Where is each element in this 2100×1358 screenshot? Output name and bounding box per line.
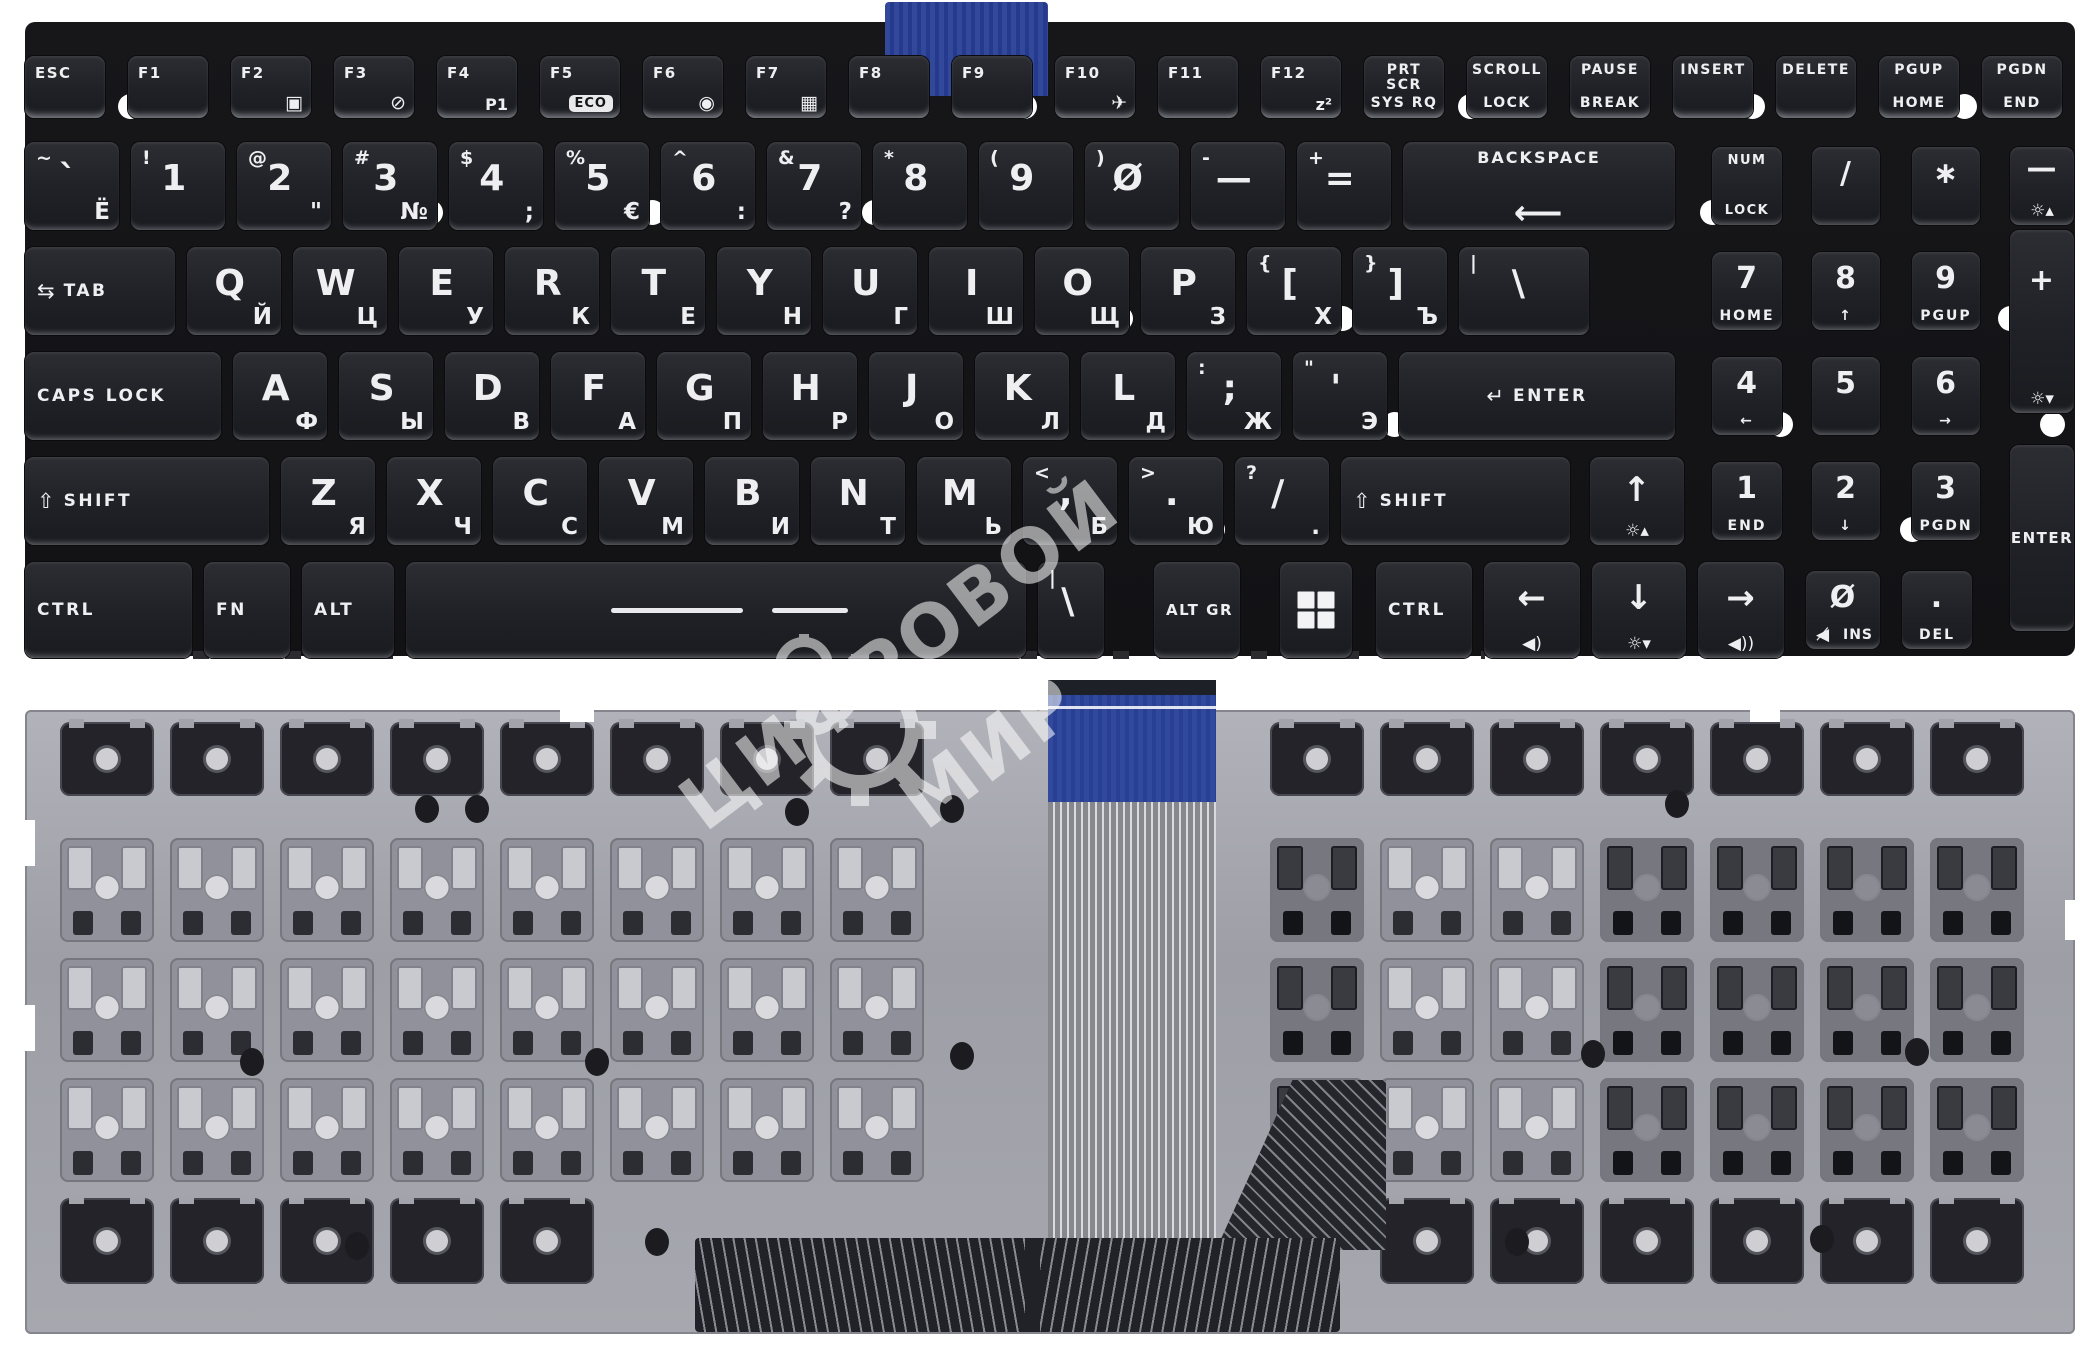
backplate-latch-cell bbox=[1380, 838, 1474, 942]
key-main-legend: ∗ bbox=[1933, 159, 1959, 189]
backplate-latch-cell bbox=[500, 722, 594, 796]
key-label: SHIFT bbox=[64, 491, 133, 511]
key-lines: DELETE bbox=[1779, 63, 1853, 111]
volume-down-icon: ◀) bbox=[1484, 636, 1580, 653]
backplate-latch-cell bbox=[1820, 1198, 1914, 1284]
key-cyrillic-legend: ; bbox=[525, 201, 534, 224]
key-cyrillic-legend: . bbox=[1311, 516, 1320, 539]
backplate-latch-cell bbox=[1710, 722, 1804, 796]
key-cyrillic-legend: И bbox=[771, 516, 790, 539]
key-label: F3 bbox=[344, 64, 368, 82]
key-main-legend: 3 bbox=[1935, 474, 1957, 504]
key-main-legend: Y bbox=[747, 266, 774, 302]
screw-hole bbox=[415, 795, 439, 823]
key-lbracket: {[Х bbox=[1247, 247, 1341, 335]
backplate-latch-cell bbox=[610, 722, 704, 796]
screw-hole bbox=[950, 1042, 974, 1070]
key-label-wrap: F6 bbox=[653, 56, 677, 118]
key-4: $4; bbox=[449, 142, 543, 230]
edge-notch bbox=[560, 708, 594, 722]
key-main-legend: ; bbox=[1223, 371, 1238, 407]
key-t: TЕ bbox=[611, 247, 705, 335]
backplate-latch-cell bbox=[1710, 958, 1804, 1062]
key-shift-legend: } bbox=[1364, 254, 1378, 273]
key-cyrillic-legend: Ч bbox=[453, 516, 472, 539]
key-period: >.Ю bbox=[1129, 457, 1223, 545]
key-lines: INSERT bbox=[1676, 63, 1750, 111]
backplate-latch-cell bbox=[1930, 722, 2024, 796]
key-shift-legend: > bbox=[1140, 464, 1156, 483]
key-arrow-left: ←◀) bbox=[1484, 562, 1580, 658]
key-2: @2" bbox=[237, 142, 331, 230]
backplate-latch-cell bbox=[1820, 1078, 1914, 1182]
key-secondary-legend: DEL bbox=[1902, 627, 1972, 643]
key-main-legend: L bbox=[1112, 371, 1136, 407]
key-label-wrap: ESC bbox=[35, 56, 72, 118]
backplate-latch-cell bbox=[1930, 958, 2024, 1062]
keyboard-front: ESCF1F2▣F3⊘P1F4F5ECOF6◉F7▦F8F9F10✈F11z²F… bbox=[25, 22, 2075, 656]
key-backslash: |\ bbox=[1459, 247, 1589, 335]
key-main-legend: / bbox=[1840, 159, 1852, 189]
key-g: GП bbox=[657, 352, 751, 440]
product-photo: ESCF1F2▣F3⊘P1F4F5ECOF6◉F7▦F8F9F10✈F11z²F… bbox=[0, 0, 2100, 1358]
edge-notch bbox=[23, 820, 35, 866]
key-main-legend: F bbox=[581, 371, 607, 407]
key-cyrillic-legend: Т bbox=[880, 516, 896, 539]
edge-notch bbox=[23, 1005, 35, 1051]
key-minus: -— bbox=[1191, 142, 1285, 230]
screw-hole bbox=[940, 795, 964, 823]
backplate-latch-cell bbox=[390, 958, 484, 1062]
key-label: ESC bbox=[35, 64, 72, 82]
key-h: HР bbox=[763, 352, 857, 440]
key-np4: 4← bbox=[1712, 357, 1782, 435]
key-comma: <,Б bbox=[1023, 457, 1117, 545]
key-cyrillic-legend: Я bbox=[348, 516, 366, 539]
key-shift-legend: - bbox=[1202, 149, 1210, 168]
key-main-legend: 3 bbox=[373, 161, 399, 197]
backplate-latch-cell bbox=[60, 722, 154, 796]
key-label-wrap: ENTER bbox=[2010, 445, 2074, 631]
key-altgr: ALT GR bbox=[1154, 562, 1240, 658]
tab-row: ⇆TABQЙWЦEУRКTЕYНUГIШOЩPЗ{[Х}]Ъ|\7HOME8↑9… bbox=[25, 247, 1980, 335]
backplate-latch-cell bbox=[1490, 1078, 1584, 1182]
backplate-latch-cell bbox=[1600, 1198, 1694, 1284]
key-label-wrap: F4 bbox=[447, 56, 471, 118]
key-main-legend: 8 bbox=[903, 161, 929, 197]
key-lines: PGUPHOME bbox=[1882, 63, 1956, 111]
key-arrow-right: →◀)) bbox=[1698, 562, 1784, 658]
key-cyrillic-legend: ? bbox=[839, 201, 852, 224]
key-shift-legend: " bbox=[1304, 359, 1314, 378]
key-insert: INSERT bbox=[1673, 56, 1753, 118]
backplate-latch-cell bbox=[60, 838, 154, 942]
key-label: ENTER bbox=[1513, 386, 1588, 406]
key-m: MЬ bbox=[917, 457, 1011, 545]
rivet-dot bbox=[2040, 412, 2065, 437]
key-arrow-up: ↑☼▴ bbox=[1590, 457, 1684, 545]
key-main-legend: . bbox=[1165, 476, 1180, 512]
key-capslock: CAPS LOCK bbox=[25, 352, 221, 440]
key-main-legend: P bbox=[1171, 266, 1198, 302]
key-f7: F7▦ bbox=[746, 56, 826, 118]
key-1: !1 bbox=[131, 142, 225, 230]
key-np2: 2↓ bbox=[1812, 462, 1880, 540]
key-lines: BACKSPACE⟵ bbox=[1406, 149, 1672, 223]
key-main-legend: . bbox=[1931, 583, 1943, 613]
key-cyrillic-legend: Р bbox=[831, 411, 848, 434]
key-lines: PAUSEBREAK bbox=[1573, 63, 1647, 111]
key-main-legend: — bbox=[2027, 154, 2058, 184]
key-shift-legend: ) bbox=[1096, 149, 1105, 168]
key-lines: PGDNEND bbox=[1985, 63, 2059, 111]
backplate-latch-cell bbox=[280, 958, 374, 1062]
backplate-latch-cell bbox=[720, 958, 814, 1062]
key-cyrillic-legend: Ы bbox=[400, 411, 424, 434]
gearbox-icon: ▦ bbox=[800, 94, 818, 113]
backplate-latch-cell bbox=[1270, 722, 1364, 796]
screw-hole bbox=[785, 798, 809, 826]
key-s: SЫ bbox=[339, 352, 433, 440]
key-shift-legend: * bbox=[884, 149, 894, 168]
backplate-latch-cell bbox=[1820, 722, 1914, 796]
key-main-legend: A bbox=[262, 371, 291, 407]
key-main-legend: G bbox=[685, 371, 716, 407]
caps-row: CAPS LOCKAФSЫDВFАGПHРJОKЛLД:;Ж"'Э↵ENTER4… bbox=[25, 352, 1980, 440]
backplate-latch-cell bbox=[1490, 838, 1584, 942]
backlight-down-icon: ☼▾ bbox=[1592, 636, 1686, 653]
key-backslash2: |\ bbox=[1038, 562, 1104, 658]
key-shift-legend: ~ bbox=[36, 149, 52, 168]
backplate-latch-cell bbox=[170, 1198, 264, 1284]
tab-arrows-icon: ⇆ bbox=[37, 281, 55, 302]
key-main-legend: 7 bbox=[1736, 264, 1758, 294]
shift-arrow-icon: ⇧ bbox=[1353, 491, 1371, 512]
key-u: UГ bbox=[823, 247, 917, 335]
backplate-latch-cell bbox=[830, 722, 924, 796]
key-cyrillic-legend: Э bbox=[1361, 411, 1378, 434]
key-delete: DELETE bbox=[1776, 56, 1856, 118]
webcam-icon: ◉ bbox=[698, 94, 715, 113]
key-f8: F8 bbox=[849, 56, 929, 118]
backplate-latch-cell bbox=[720, 722, 814, 796]
membrane-trace-fan bbox=[695, 1238, 1340, 1332]
key-semicolon: :;Ж bbox=[1187, 352, 1281, 440]
airplane-icon: ✈ bbox=[1111, 94, 1127, 113]
key-shift-legend: ? bbox=[1246, 464, 1257, 483]
key-label-wrap: F12 bbox=[1271, 56, 1307, 118]
key-main-legend: ] bbox=[1388, 266, 1405, 302]
key-arrow-down: ↓☼▾ bbox=[1592, 562, 1686, 658]
key-label: TAB bbox=[64, 281, 108, 301]
key-quote: "'Э bbox=[1293, 352, 1387, 440]
key-pause: PAUSEBREAK bbox=[1570, 56, 1650, 118]
key-label-wrap: F7 bbox=[756, 56, 780, 118]
key-cyrillic-legend: Л bbox=[1041, 411, 1060, 434]
backplate-latch-cell bbox=[1930, 1198, 2024, 1284]
key-label-wrap: CAPS LOCK bbox=[37, 352, 166, 440]
backplate-latch-cell bbox=[170, 722, 264, 796]
backlight-down-icon: ☼▾ bbox=[2010, 391, 2074, 408]
key-label-wrap: ↵ENTER bbox=[1399, 352, 1675, 440]
key-8: *8 bbox=[873, 142, 967, 230]
key-main-legend: C bbox=[523, 476, 550, 512]
backplate-latch-cell bbox=[170, 958, 264, 1062]
key-y: YН bbox=[717, 247, 811, 335]
key-main-legend: Q bbox=[214, 266, 246, 302]
key-cyrillic-legend: С bbox=[561, 516, 578, 539]
key-main-legend: 6 bbox=[1935, 369, 1957, 399]
backplate-latch-cell bbox=[1270, 838, 1364, 942]
key-secondary-legend: PGUP bbox=[1912, 308, 1980, 324]
key-main-legend: R bbox=[534, 266, 563, 302]
backplate-latch-cell bbox=[170, 1078, 264, 1182]
key-label: F2 bbox=[241, 64, 265, 82]
backplate-latch-cell bbox=[1930, 838, 2024, 942]
key-label: F5 bbox=[550, 64, 574, 82]
key-secondary-legend: ↓ bbox=[1812, 518, 1880, 534]
key-cyrillic-legend: У bbox=[466, 306, 484, 329]
key-secondary-legend: → bbox=[1912, 413, 1980, 429]
key-cyrillic-legend: Е bbox=[680, 306, 696, 329]
key-label-wrap: F11 bbox=[1168, 56, 1204, 118]
key-cyrillic-legend: № bbox=[400, 201, 428, 224]
backplate-latch-cell bbox=[1380, 1198, 1474, 1284]
eco-icon: ECO bbox=[569, 95, 613, 112]
backplate-latch-cell bbox=[1820, 958, 1914, 1062]
backplate-latch-cell bbox=[280, 1078, 374, 1182]
key-label-wrap: F10 bbox=[1065, 56, 1101, 118]
key-main-legend: B bbox=[734, 476, 762, 512]
backplate-latch-cell bbox=[1710, 838, 1804, 942]
key-cyrillic-legend: Ц bbox=[357, 306, 378, 329]
screw-hole bbox=[1905, 1038, 1929, 1066]
key-label: SHIFT bbox=[1380, 491, 1449, 511]
key-label: ALT bbox=[314, 600, 354, 620]
key-shift-legend: | bbox=[1049, 569, 1056, 588]
key-cyrillic-legend: z² bbox=[1316, 97, 1332, 113]
key-main-legend: 4 bbox=[479, 161, 505, 197]
windows-logo-icon bbox=[1298, 592, 1335, 629]
key-main-legend: / bbox=[1271, 476, 1285, 512]
backplate-latch-cell bbox=[1600, 958, 1694, 1062]
backplate-latch-cell bbox=[500, 958, 594, 1062]
key-main-legend: , bbox=[1059, 476, 1074, 512]
edge-notch bbox=[2065, 900, 2077, 940]
key-main-legend: ← bbox=[1517, 581, 1547, 615]
key-f6: F6◉ bbox=[643, 56, 723, 118]
key-np8: 8↑ bbox=[1812, 252, 1880, 330]
key-lines: NUMLOCK bbox=[1715, 154, 1779, 218]
key-np-plus: +☼▾ bbox=[2010, 230, 2074, 413]
key-o: OЩ bbox=[1035, 247, 1129, 335]
key-ctrl-right: CTRL bbox=[1376, 562, 1472, 658]
key-numlock: NUMLOCK bbox=[1712, 147, 1782, 225]
key-shift-legend: & bbox=[778, 149, 795, 168]
key-main-legend: J bbox=[905, 371, 919, 407]
displays-icon: ▣ bbox=[285, 94, 303, 113]
key-main-legend: Ø bbox=[1112, 161, 1144, 197]
key-main-legend: H bbox=[791, 371, 822, 407]
backplate-latch-cell bbox=[500, 838, 594, 942]
key-secondary-legend: ← bbox=[1712, 413, 1782, 429]
key-main-legend: M bbox=[942, 476, 979, 512]
key-q: QЙ bbox=[187, 247, 281, 335]
key-np-divide: / bbox=[1812, 147, 1880, 225]
key-f: FА bbox=[551, 352, 645, 440]
key-label: F7 bbox=[756, 64, 780, 82]
key-main-legend: 1 bbox=[161, 161, 187, 197]
key-pgdn: PGDNEND bbox=[1982, 56, 2062, 118]
key-e: EУ bbox=[399, 247, 493, 335]
key-main-legend: T bbox=[641, 266, 667, 302]
key-enter: ↵ENTER bbox=[1399, 352, 1675, 440]
key-w: WЦ bbox=[293, 247, 387, 335]
key-prtscr: PRT SCRSYS RQ bbox=[1364, 56, 1444, 118]
key-cyrillic-legend: Ь bbox=[984, 516, 1002, 539]
key-lines: PRT SCRSYS RQ bbox=[1367, 63, 1441, 111]
key-label: F11 bbox=[1168, 64, 1204, 82]
key-main-legend: 5 bbox=[585, 161, 611, 197]
key-main-legend: Ø bbox=[1830, 583, 1857, 613]
key-cyrillic-legend: О bbox=[934, 411, 954, 434]
backplate-latch-cell bbox=[390, 722, 484, 796]
key-shift-legend: % bbox=[566, 149, 585, 168]
key-main-legend: O bbox=[1062, 266, 1094, 302]
key-np-multiply: ∗ bbox=[1912, 147, 1980, 225]
backplate-latch-cell bbox=[1820, 838, 1914, 942]
key-main-legend: 6 bbox=[691, 161, 717, 197]
screw-hole bbox=[1505, 1228, 1529, 1256]
key-j: JО bbox=[869, 352, 963, 440]
key-label: F1 bbox=[138, 64, 162, 82]
screw-hole bbox=[1810, 1225, 1834, 1253]
key-np9: 9PGUP bbox=[1912, 252, 1980, 330]
key-shift-legend: ^ bbox=[672, 149, 688, 168]
shift-arrow-icon: ⇧ bbox=[37, 491, 55, 512]
backplate-latch-cell bbox=[1600, 722, 1694, 796]
key-cyrillic-legend: К bbox=[571, 306, 590, 329]
key-shift-legend: { bbox=[1258, 254, 1272, 273]
key-np-dot: .DEL bbox=[1902, 571, 1972, 649]
volume-up-icon: ◀)) bbox=[1698, 636, 1784, 653]
key-np3: 3PGDN bbox=[1912, 462, 1980, 540]
key-main-legend: 7 bbox=[797, 161, 823, 197]
key-fn: FN bbox=[204, 562, 290, 658]
screw-hole bbox=[585, 1048, 609, 1076]
key-secondary-legend: ↑ bbox=[1812, 308, 1880, 324]
number-row: ~`Ё!1@2"#3№$4;%5€^6:&7?*8(9)Ø-—+=BACKSPA… bbox=[25, 142, 2074, 230]
backplate-latch-cell bbox=[1270, 958, 1364, 1062]
key-7: &7? bbox=[767, 142, 861, 230]
key-main-legend: 8 bbox=[1835, 264, 1857, 294]
key-i: IШ bbox=[929, 247, 1023, 335]
key-label: F10 bbox=[1065, 64, 1101, 82]
key-label: F6 bbox=[653, 64, 677, 82]
key-p: PЗ bbox=[1141, 247, 1235, 335]
key-cyrillic-legend: Д bbox=[1146, 411, 1166, 434]
key-f12: z²F12 bbox=[1261, 56, 1341, 118]
function-row: ESCF1F2▣F3⊘P1F4F5ECOF6◉F7▦F8F9F10✈F11z²F… bbox=[25, 56, 2062, 118]
key-x: XЧ bbox=[387, 457, 481, 545]
key-np7: 7HOME bbox=[1712, 252, 1782, 330]
ribbon-cable-blue bbox=[1048, 680, 1216, 802]
screw-hole bbox=[1581, 1040, 1605, 1068]
key-main-legend: 2 bbox=[267, 161, 293, 197]
key-main-legend: 2 bbox=[1835, 474, 1857, 504]
backplate-latch-cell bbox=[1710, 1198, 1804, 1284]
key-label-wrap: CTRL bbox=[37, 562, 95, 658]
key-main-legend: 1 bbox=[1736, 474, 1758, 504]
key-label: ENTER bbox=[2011, 529, 2073, 547]
key-cyrillic-legend: P1 bbox=[485, 97, 508, 113]
key-cyrillic-legend: : bbox=[737, 201, 746, 224]
key-k: KЛ bbox=[975, 352, 1069, 440]
key-f10: F10✈ bbox=[1055, 56, 1135, 118]
key-label-wrap: ⇧SHIFT bbox=[1353, 457, 1448, 545]
backlight-up-icon: ☼▴ bbox=[1590, 523, 1684, 540]
backplate-latch-cell bbox=[610, 838, 704, 942]
key-0: )Ø bbox=[1085, 142, 1179, 230]
key-label-wrap: ALT bbox=[314, 562, 354, 658]
key-main-legend: ↑ bbox=[1622, 473, 1652, 507]
backplate-latch-cell bbox=[60, 958, 154, 1062]
key-f2: F2▣ bbox=[231, 56, 311, 118]
key-f3: F3⊘ bbox=[334, 56, 414, 118]
key-cyrillic-legend: " bbox=[310, 201, 322, 224]
key-main-legend: \ bbox=[1512, 266, 1526, 302]
key-main-legend: → bbox=[1726, 581, 1756, 615]
backplate-latch-cell bbox=[720, 838, 814, 942]
key-f9: F9 bbox=[952, 56, 1032, 118]
key-label: ALT GR bbox=[1166, 601, 1233, 619]
backplate-latch-cell bbox=[830, 958, 924, 1062]
key-np5: 5 bbox=[1812, 357, 1880, 435]
key-label: CTRL bbox=[1388, 600, 1446, 620]
key-main-legend: ' bbox=[1330, 371, 1342, 407]
key-cyrillic-legend: Ъ bbox=[1416, 306, 1438, 329]
key-main-legend: X bbox=[416, 476, 445, 512]
backplate-latch-cell bbox=[610, 958, 704, 1062]
key-shift-legend: : bbox=[1198, 359, 1206, 378]
key-main-legend: [ bbox=[1282, 266, 1299, 302]
backplate-latch-cell bbox=[500, 1078, 594, 1182]
key-main-legend: K bbox=[1004, 371, 1033, 407]
key-6: ^6: bbox=[661, 142, 755, 230]
key-cyrillic-legend: Ш bbox=[986, 306, 1014, 329]
key-f11: F11 bbox=[1158, 56, 1238, 118]
key-cyrillic-legend: Н bbox=[783, 306, 802, 329]
key-v: VМ bbox=[599, 457, 693, 545]
key-label: CAPS LOCK bbox=[37, 386, 166, 406]
key-label: F4 bbox=[447, 64, 471, 82]
key-slash: ?/. bbox=[1235, 457, 1329, 545]
shift-row: ⇧SHIFTZЯXЧCСVМBИNТMЬ<,Б>.Ю?/.⇧SHIFT↑☼▴1E… bbox=[25, 457, 1980, 545]
key-main-legend: W bbox=[316, 266, 357, 302]
key-label-wrap: ⇧SHIFT bbox=[37, 457, 132, 545]
ribbon-cable-traces bbox=[1048, 802, 1216, 1238]
key-main-legend: Z bbox=[311, 476, 338, 512]
key-label-wrap: F1 bbox=[138, 56, 162, 118]
key-shift-legend: $ bbox=[460, 149, 473, 168]
backplate-latch-cell bbox=[170, 838, 264, 942]
key-main-legend: E bbox=[429, 266, 455, 302]
key-np-minus: —☼▴ bbox=[2010, 147, 2074, 225]
key-label-wrap: ⇆TAB bbox=[37, 247, 108, 335]
key-lines: SCROLLLOCK bbox=[1470, 63, 1544, 111]
key-esc: ESC bbox=[25, 56, 105, 118]
key-main-legend: U bbox=[851, 266, 881, 302]
